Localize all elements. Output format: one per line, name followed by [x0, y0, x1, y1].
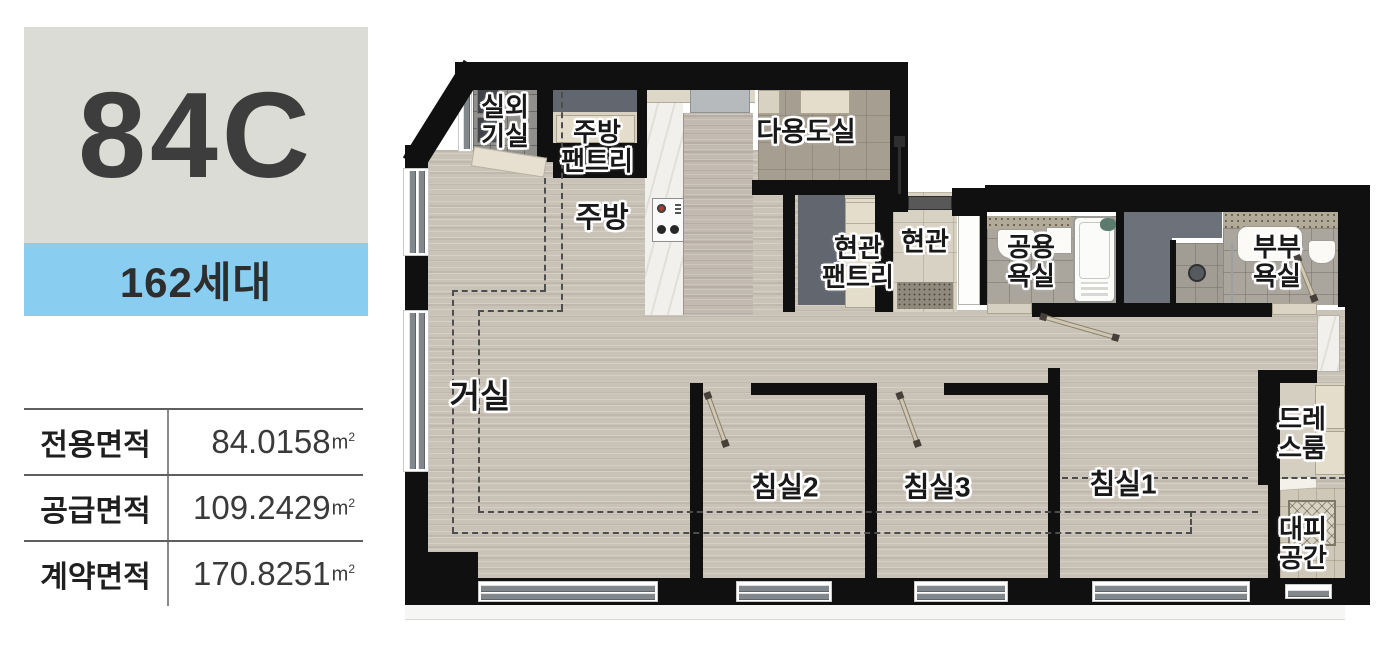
- wall: [980, 212, 987, 305]
- room-label-bedroom1: 침실1: [1089, 468, 1156, 499]
- floor-plan-page: 84C 162세대 전용면적 84.0158m2 공급면적 109.2429m2…: [0, 0, 1388, 660]
- glass-partition: [1231, 243, 1233, 305]
- area-row-value: 170.8251m2: [167, 542, 363, 606]
- wall: [537, 62, 553, 162]
- door-sill: [1272, 303, 1317, 315]
- wall: [752, 180, 905, 195]
- wall: [944, 383, 1049, 395]
- front-door: [908, 196, 952, 210]
- toilet-icon: [1308, 240, 1336, 264]
- wall: [1258, 370, 1280, 485]
- wall: [751, 383, 877, 395]
- entrance-marker-line: [898, 144, 901, 194]
- wall: [690, 383, 703, 580]
- wall: [865, 394, 877, 580]
- wall: [1338, 212, 1348, 307]
- wall: [1048, 368, 1060, 580]
- expansion-dashed-line: [452, 290, 546, 292]
- unit-type-box: 84C: [24, 27, 368, 243]
- washer-icon: [800, 90, 850, 114]
- utility-cabinet: [758, 90, 780, 114]
- wall: [1345, 185, 1370, 605]
- shoe-closet: [958, 215, 980, 305]
- room-label-refuge: 대피 공간: [1279, 515, 1327, 573]
- expansion-dashed-line: [478, 310, 563, 312]
- room-label-utility: 다용도실: [756, 117, 855, 147]
- expansion-dashed-line: [1190, 511, 1192, 533]
- households-band: 162세대: [24, 243, 368, 316]
- wall: [1116, 212, 1124, 305]
- hall-closet: [1172, 212, 1222, 238]
- expansion-dashed-line: [1190, 511, 1258, 513]
- households-label: 162세대: [120, 249, 272, 310]
- window: [736, 581, 832, 602]
- area-row-label: 공급면적: [24, 476, 167, 540]
- area-row-contract: 계약면적 170.8251m2: [24, 540, 363, 606]
- area-row-label: 전용면적: [24, 410, 167, 474]
- room-label-common-bath: 공용 욕실: [1007, 233, 1055, 291]
- dress-room-door: [1317, 315, 1340, 372]
- wall: [783, 195, 795, 312]
- wall: [1170, 240, 1176, 305]
- window: [1285, 584, 1332, 599]
- room-label-outdoor-unit: 실외 기실: [481, 93, 529, 151]
- exterior-sill: [405, 605, 1345, 620]
- wall: [455, 62, 908, 90]
- expansion-dashed-line: [478, 511, 1190, 513]
- stove-icon: [652, 198, 684, 242]
- expansion-dashed-line: [1282, 477, 1345, 479]
- room-label-kitchen-pantry: 주방 팬트리: [561, 118, 633, 176]
- expansion-dashed-line: [544, 178, 546, 290]
- area-row-label: 계약면적: [24, 542, 167, 606]
- area-row-exclusive: 전용면적 84.0158m2: [24, 408, 363, 474]
- wall: [637, 85, 647, 178]
- door-sill: [987, 303, 1032, 314]
- wall: [1032, 303, 1272, 317]
- window: [403, 168, 429, 256]
- room-label-entry-pantry: 현관 팬트리: [822, 234, 894, 292]
- kitchen-sink-icon: [690, 89, 750, 113]
- wall: [985, 185, 1370, 212]
- room-label-living: 거실: [450, 379, 511, 416]
- window: [914, 581, 1008, 602]
- plant-icon: [1100, 218, 1116, 231]
- room-label-entry: 현관: [901, 227, 949, 256]
- area-row-value: 109.2429m2: [167, 476, 363, 540]
- room-label-dress-room: 드레 스룸: [1278, 405, 1326, 463]
- area-row-value: 84.0158m2: [167, 410, 363, 474]
- window: [403, 310, 429, 472]
- room-label-bedroom2: 침실2: [751, 471, 818, 502]
- kitchen-island: [683, 113, 753, 315]
- window: [478, 581, 658, 602]
- entry-mat: [897, 282, 953, 309]
- room-label-master-bath: 부부 욕실: [1253, 233, 1301, 291]
- window: [1092, 581, 1250, 602]
- room-label-kitchen: 주방: [575, 202, 628, 234]
- shower-drain-icon: [1188, 264, 1206, 282]
- unit-type-label: 84C: [78, 65, 314, 205]
- entrance-marker-icon: [894, 136, 905, 147]
- hall-closet: [1122, 212, 1172, 304]
- area-row-supply: 공급면적 109.2429m2: [24, 474, 363, 540]
- expansion-dashed-line: [452, 532, 1192, 534]
- room-label-bedroom3: 침실3: [903, 471, 970, 502]
